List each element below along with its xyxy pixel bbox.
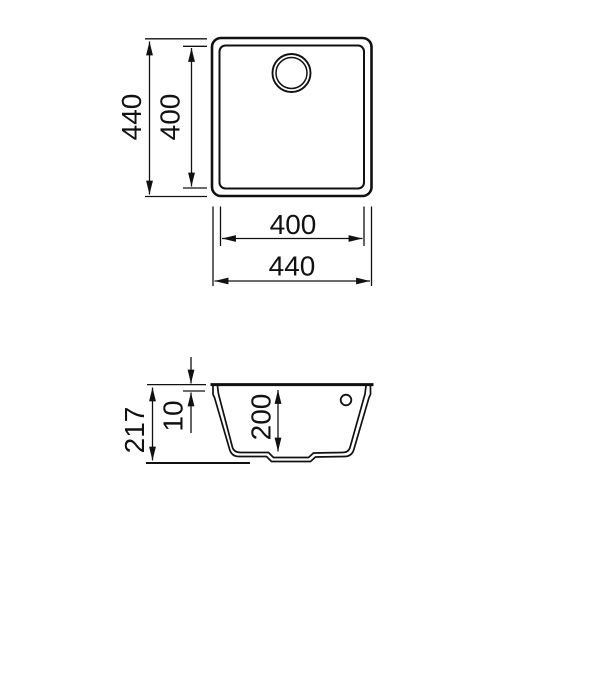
top-view xyxy=(212,38,372,196)
dim-label-outer-height: 440 xyxy=(116,94,147,141)
dim-label-rim-thickness: 10 xyxy=(157,400,188,431)
sink-inner-profile xyxy=(218,386,367,458)
dim-label-bowl-height: 400 xyxy=(154,94,185,141)
sink-bowl-rect xyxy=(220,46,365,189)
top-view-left-dimensions: 440 400 xyxy=(116,39,207,197)
sink-outer-profile xyxy=(213,386,371,462)
dim-label-bowl-depth: 200 xyxy=(245,394,276,441)
top-view-bottom-dimensions: 400 440 xyxy=(213,207,372,287)
dim-label-bowl-width: 400 xyxy=(270,209,317,240)
technical-drawing-page: 440 400 400 440 xyxy=(0,0,600,689)
side-view-dimensions: 10 217 200 xyxy=(119,357,278,461)
sink-dimension-drawing: 440 400 400 440 xyxy=(0,0,600,689)
overflow-hole-circle xyxy=(341,395,352,406)
dim-label-total-height: 217 xyxy=(119,407,150,454)
dim-label-outer-width: 440 xyxy=(269,250,316,281)
